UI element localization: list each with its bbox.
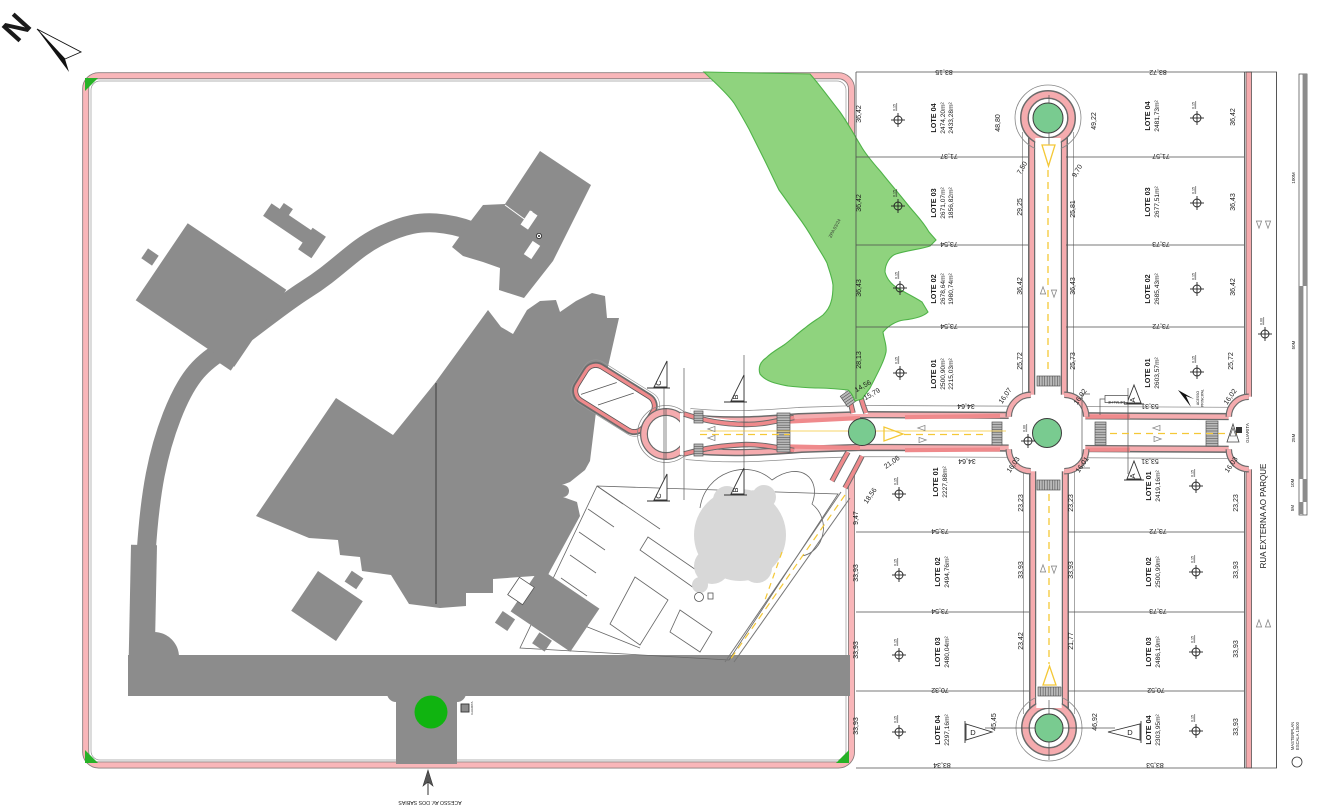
svg-text:70,52: 70,52 (1147, 686, 1165, 693)
svg-text:0,15: 0,15 (893, 104, 897, 111)
svg-text:2603,57m²: 2603,57m² (1154, 356, 1161, 388)
svg-text:D: D (1127, 728, 1133, 737)
svg-text:25,81: 25,81 (1070, 200, 1077, 218)
svg-text:23,23: 23,23 (1068, 494, 1075, 512)
svg-text:53,31: 53,31 (1141, 402, 1159, 409)
svg-text:B: B (731, 487, 740, 492)
svg-text:GUARITA: GUARITA (1245, 423, 1250, 443)
svg-text:73,54: 73,54 (931, 527, 949, 534)
svg-text:1856,82m²: 1856,82m² (948, 186, 955, 218)
svg-text:23,23: 23,23 (1233, 494, 1240, 512)
svg-text:LOTE 03: LOTE 03 (929, 188, 938, 217)
svg-text:ACESSO: ACESSO (1196, 391, 1200, 405)
svg-text:83,15: 83,15 (935, 68, 953, 75)
svg-text:0,15: 0,15 (894, 716, 898, 723)
svg-text:36,42: 36,42 (1230, 108, 1237, 126)
svg-text:5M: 5M (1290, 505, 1295, 512)
svg-text:2685,43m²: 2685,43m² (1154, 272, 1161, 304)
svg-text:0,15: 0,15 (895, 357, 899, 364)
svg-text:73,72: 73,72 (1152, 322, 1170, 329)
svg-text:LOTE 04: LOTE 04 (1143, 101, 1152, 130)
svg-text:2297,16m²: 2297,16m² (944, 713, 951, 745)
svg-text:73,73: 73,73 (1152, 240, 1170, 247)
svg-text:49,22: 49,22 (1091, 112, 1098, 130)
svg-text:0,15: 0,15 (895, 272, 899, 279)
svg-text:36,42: 36,42 (856, 194, 863, 212)
svg-text:73,72: 73,72 (1149, 527, 1167, 534)
svg-text:48,80: 48,80 (995, 114, 1002, 132)
svg-text:23,23: 23,23 (1018, 494, 1025, 512)
svg-text:LOTE 01: LOTE 01 (931, 467, 940, 496)
svg-text:LOTE 02: LOTE 02 (929, 274, 938, 303)
svg-text:73,73: 73,73 (1149, 607, 1167, 614)
svg-text:33,93: 33,93 (1233, 561, 1240, 579)
svg-text:23,42: 23,42 (1018, 632, 1025, 650)
svg-text:36,43: 36,43 (1070, 277, 1077, 295)
svg-text:36,42: 36,42 (1230, 278, 1237, 296)
svg-text:LOTE 03: LOTE 03 (1143, 187, 1152, 216)
svg-text:73,54: 73,54 (940, 322, 958, 329)
svg-text:0,15: 0,15 (894, 478, 898, 485)
svg-text:0,15: 0,15 (1191, 470, 1195, 477)
svg-text:83,34: 83,34 (933, 761, 951, 768)
svg-text:0,15: 0,15 (1191, 556, 1195, 563)
svg-text:70,32: 70,32 (931, 686, 949, 693)
svg-text:D: D (970, 728, 976, 737)
svg-text:2303,95m²: 2303,95m² (1155, 713, 1162, 745)
svg-text:2677,51m²: 2677,51m² (1154, 185, 1161, 217)
svg-text:36,43: 36,43 (1230, 193, 1237, 211)
svg-text:0,15: 0,15 (1192, 356, 1196, 363)
svg-text:28,13: 28,13 (856, 351, 863, 369)
svg-text:2433,28m²: 2433,28m² (948, 101, 955, 133)
svg-text:36,43: 36,43 (856, 279, 863, 297)
svg-text:33,93: 33,93 (1018, 561, 1025, 579)
svg-text:0,00: 0,00 (1260, 318, 1264, 325)
svg-text:9,47: 9,47 (853, 511, 860, 525)
svg-text:LOTE 03: LOTE 03 (933, 637, 942, 666)
svg-text:0,15: 0,15 (894, 639, 898, 646)
svg-text:B: B (731, 394, 740, 399)
svg-text:2486,19m²: 2486,19m² (1155, 635, 1162, 667)
svg-text:34,64: 34,64 (958, 457, 976, 464)
svg-text:29,25: 29,25 (1017, 198, 1024, 216)
svg-text:0,15: 0,15 (1192, 102, 1196, 109)
svg-text:34,64: 34,64 (957, 402, 975, 409)
svg-text:83,53: 83,53 (1146, 761, 1164, 768)
svg-text:0,15: 0,15 (1192, 273, 1196, 280)
svg-text:33,93: 33,93 (1233, 640, 1240, 658)
svg-text:ESCALA 1/500: ESCALA 1/500 (1295, 721, 1300, 750)
svg-text:2474,20m²: 2474,20m² (940, 101, 947, 133)
svg-text:71,57: 71,57 (1152, 152, 1170, 159)
svg-text:36,42: 36,42 (856, 105, 863, 123)
svg-text:73,54: 73,54 (940, 240, 958, 247)
svg-text:ACESSO AV. DOS SABIAS: ACESSO AV. DOS SABIAS (398, 799, 462, 805)
svg-text:LOTE 04: LOTE 04 (933, 715, 942, 744)
svg-text:45,45: 45,45 (991, 713, 998, 731)
svg-text:LOTE 01: LOTE 01 (1143, 358, 1152, 387)
svg-text:25,72: 25,72 (1228, 352, 1235, 370)
svg-text:LOTE 02: LOTE 02 (933, 557, 942, 586)
svg-text:2481,73m²: 2481,73m² (1154, 99, 1161, 131)
svg-text:50M: 50M (1291, 340, 1296, 349)
svg-text:C: C (654, 493, 663, 499)
svg-text:2480,04m²: 2480,04m² (944, 635, 951, 667)
svg-text:71,37: 71,37 (940, 152, 958, 159)
svg-text:0,15: 0,15 (894, 559, 898, 566)
svg-text:25,72: 25,72 (1017, 352, 1024, 370)
svg-text:0,15: 0,15 (893, 190, 897, 197)
svg-text:33,93: 33,93 (1233, 718, 1240, 736)
svg-text:2671,07m²: 2671,07m² (940, 186, 947, 218)
svg-text:0,15: 0,15 (1192, 187, 1196, 194)
svg-text:LOTE 02: LOTE 02 (1144, 557, 1153, 586)
svg-text:LOTE 04: LOTE 04 (929, 103, 938, 132)
svg-text:0,15: 0,15 (1191, 636, 1195, 643)
svg-text:C: C (654, 380, 663, 386)
svg-text:33,93: 33,93 (853, 641, 860, 659)
svg-text:33,93: 33,93 (1068, 561, 1075, 579)
svg-text:53,31: 53,31 (1141, 457, 1159, 464)
svg-text:0,00: 0,00 (1023, 425, 1027, 432)
svg-text:LOTE 01: LOTE 01 (1144, 471, 1153, 500)
svg-text:33,93: 33,93 (853, 717, 860, 735)
svg-text:2419,16m²: 2419,16m² (1155, 469, 1162, 501)
svg-text:1980,74m²: 1980,74m² (948, 272, 955, 304)
svg-text:2500,90m²: 2500,90m² (940, 357, 947, 389)
svg-text:2227,88m²: 2227,88m² (942, 465, 949, 497)
svg-text:LOTE 04: LOTE 04 (1144, 715, 1153, 744)
svg-text:21,77: 21,77 (1068, 632, 1075, 650)
svg-text:33,93: 33,93 (853, 564, 860, 582)
svg-text:A: A (1128, 397, 1137, 402)
svg-text:RUA EXTERNA AO PARQUE: RUA EXTERNA AO PARQUE (1259, 464, 1268, 569)
svg-text:2494,76m²: 2494,76m² (944, 555, 951, 587)
svg-text:A: A (1128, 473, 1137, 478)
svg-text:83,72: 83,72 (1149, 68, 1167, 75)
svg-text:46,92: 46,92 (1092, 713, 1099, 731)
svg-text:LOTE 01: LOTE 01 (929, 359, 938, 388)
svg-text:LOTE 03: LOTE 03 (1144, 637, 1153, 666)
svg-text:10M: 10M (1290, 478, 1295, 487)
svg-text:100M: 100M (1291, 172, 1296, 184)
svg-text:LOTE 02: LOTE 02 (1143, 274, 1152, 303)
svg-text:2678,64m²: 2678,64m² (940, 272, 947, 304)
svg-text:GUARITA: GUARITA (470, 701, 474, 714)
svg-text:2500,99m²: 2500,99m² (1155, 555, 1162, 587)
svg-text:0,15: 0,15 (1191, 715, 1195, 722)
svg-text:25M: 25M (1291, 433, 1296, 442)
svg-text:PRINCIPAL: PRINCIPAL (1201, 389, 1205, 407)
svg-text:73,54: 73,54 (931, 607, 949, 614)
svg-text:25,73: 25,73 (1070, 352, 1077, 370)
svg-text:DETALHE: DETALHE (1107, 400, 1125, 404)
svg-text:36,42: 36,42 (1017, 277, 1024, 295)
svg-text:2215,03m²: 2215,03m² (948, 357, 955, 389)
